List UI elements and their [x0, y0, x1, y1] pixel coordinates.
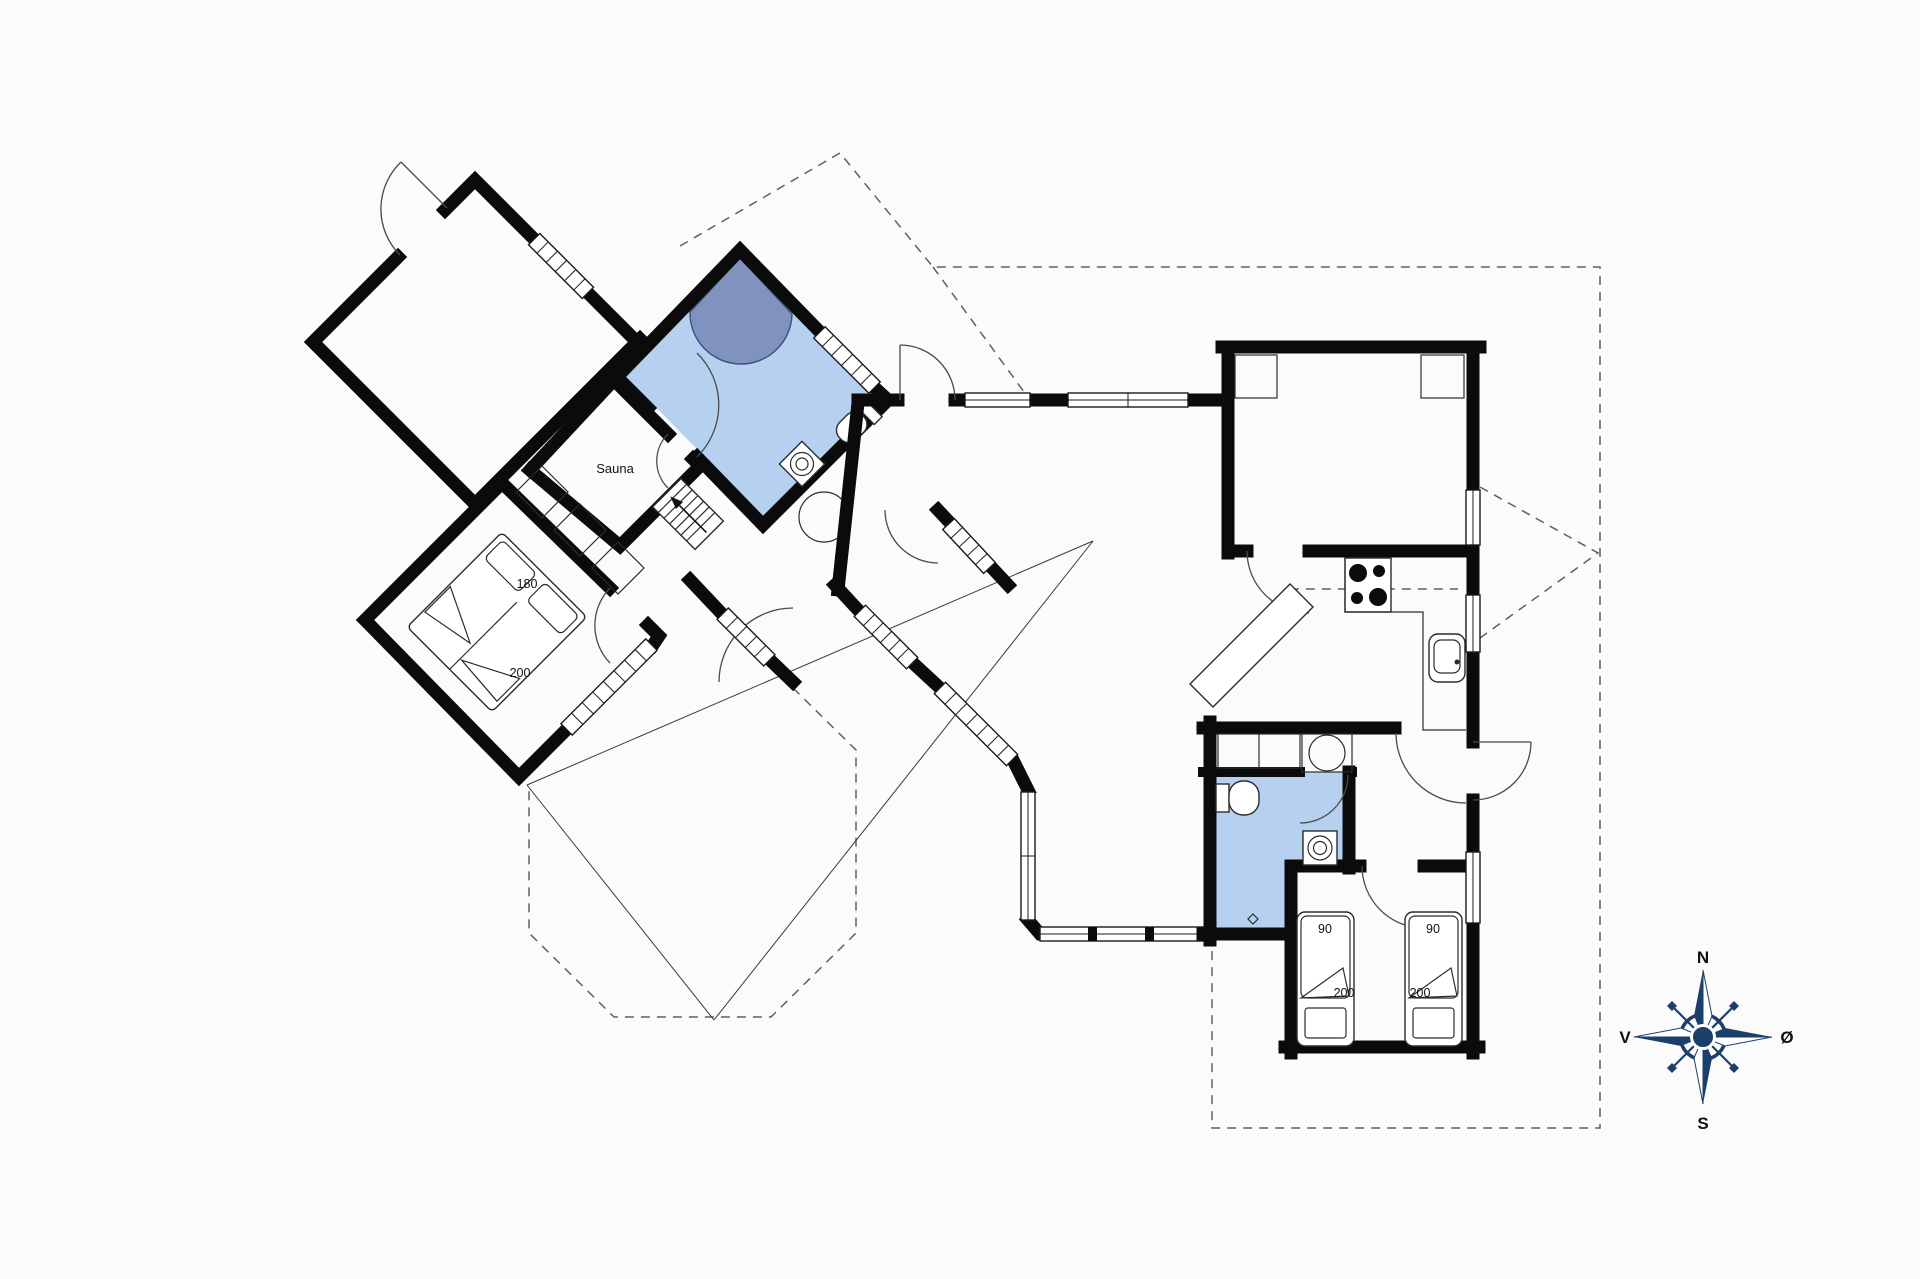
sink-icon-2 [1303, 831, 1337, 865]
room-bedroom-master: 180 200 [365, 466, 659, 777]
master-bedroom-window [561, 639, 657, 735]
entry-room-door [381, 162, 447, 255]
eave-line-2 [527, 785, 714, 1020]
kitchen [1190, 558, 1480, 803]
bay-window-2 [934, 682, 1017, 765]
kitchen-hall-door [1396, 733, 1466, 803]
closet [1421, 355, 1464, 398]
hall-east [1473, 742, 1531, 800]
eave-line-3 [714, 541, 1093, 1020]
entrance-door [900, 345, 955, 400]
room-entry [313, 162, 640, 504]
stove-icon [1345, 558, 1391, 612]
roof-hip-line [933, 267, 1035, 407]
compass-north-label: N [1697, 948, 1709, 967]
north-window-1 [965, 393, 1030, 407]
south-window-band [1040, 927, 1205, 941]
compass-west-label: V [1619, 1028, 1631, 1047]
east-window-2 [1466, 595, 1480, 652]
entry-room-window [528, 233, 593, 298]
twin-bed2-width-label: 90 [1426, 922, 1440, 936]
hall-window [943, 519, 996, 574]
bay-window-3-vertical [1021, 792, 1035, 920]
twin-bed1-length-label: 200 [1334, 986, 1355, 1000]
living-room-door [885, 510, 938, 563]
east-window-3 [1466, 852, 1480, 923]
sauna-label: Sauna [596, 461, 634, 476]
kitchen-sink-icon [1429, 634, 1465, 682]
living-room [835, 345, 1228, 941]
stairs [653, 479, 724, 550]
compass-east-label: Ø [1780, 1028, 1793, 1047]
compass-south-label: S [1697, 1114, 1708, 1133]
twin-bed2-length-label: 200 [1410, 986, 1431, 1000]
exterior-door-east [1473, 742, 1531, 800]
roof-eave-lines [527, 541, 1093, 1020]
floor-plan-canvas: Sauna [0, 0, 1920, 1279]
corridor-window [717, 608, 775, 666]
master-bedroom-door [595, 588, 610, 663]
master-bed-length-label: 200 [510, 666, 531, 680]
east-window-1 [1466, 490, 1480, 545]
utility-closets [1218, 734, 1352, 772]
room-bedroom-twin: 90 200 90 200 [1297, 852, 1480, 1046]
terrace-outline-dashed [529, 688, 856, 1017]
east-wing: 90 200 90 200 [1190, 347, 1531, 1053]
bay-window-1 [854, 605, 918, 669]
twin-bed1-width-label: 90 [1318, 922, 1332, 936]
closet [1235, 355, 1277, 398]
compass-center [1692, 1026, 1715, 1049]
room-bathroom-1 [626, 257, 880, 516]
washer-icon [1309, 735, 1345, 771]
toilet-icon-2 [1216, 781, 1259, 815]
kitchen-peninsula [1190, 584, 1313, 707]
entry-room-walls [313, 180, 640, 504]
north-window-2 [1068, 393, 1188, 407]
east-gable-dashed [1480, 487, 1598, 638]
compass-rose: N S V Ø [1619, 948, 1793, 1133]
sauna-door [657, 434, 668, 488]
shower-icon [690, 258, 792, 364]
master-bed-width-label: 180 [517, 577, 538, 591]
nw-wing: Sauna [313, 162, 888, 777]
terrace-octagon [529, 688, 856, 1017]
